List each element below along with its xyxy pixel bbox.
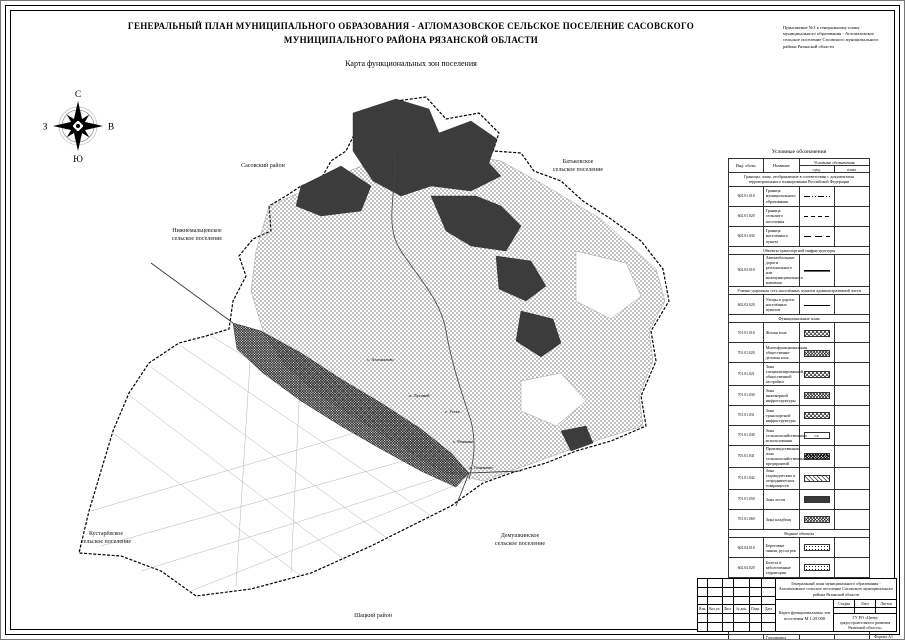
legend-swatch-cell xyxy=(799,445,834,467)
legend-code: 602.01.030 xyxy=(729,226,764,246)
stage-label: Стадия xyxy=(834,600,855,607)
revision-cell xyxy=(708,597,723,605)
legend-name: Жилая зона xyxy=(764,323,799,343)
legend-code: 701.01.020 xyxy=(729,343,764,363)
legend-row: 701.01.042Зона садоводческих и огороднич… xyxy=(729,467,870,489)
settlement-label: п. Луговой xyxy=(409,393,430,398)
revision-col-label: Лист xyxy=(723,605,734,613)
revision-cell xyxy=(762,597,775,605)
legend-swatch-cell xyxy=(799,323,834,343)
settlement-label: с. Устье xyxy=(445,409,460,414)
region-label: Демушкинское сельское поселение xyxy=(455,533,585,549)
legend-name: Улицы и дороги населённых пунктов xyxy=(764,295,799,315)
legend-row: 602.01.020Граница сельского поселения xyxy=(729,206,870,226)
title-block-revision-grid: Изм.Кол.уч.Лист№ док.Подп.Дата xyxy=(698,579,776,631)
legend-code: 701.01.050 xyxy=(729,489,764,509)
legend-name: Болота и заболоченные территории xyxy=(764,558,799,578)
legend-plan-cell xyxy=(834,509,869,529)
revision-cell xyxy=(734,597,751,605)
legend-col-planned: план. xyxy=(834,166,869,173)
legend-swatch-cell xyxy=(799,295,834,315)
legend-swatch-cell xyxy=(799,254,834,286)
revision-cell xyxy=(708,579,723,587)
revision-cell xyxy=(698,588,708,596)
legend-swatch-cell xyxy=(799,467,834,489)
legend-name: Автомобильные дороги регионального или м… xyxy=(764,254,799,286)
legend-row: 602.04.020Болота и заболоченные территор… xyxy=(729,558,870,578)
revision-col-label: Дата xyxy=(762,605,775,613)
page-title-line2: МУНИЦИПАЛЬНОГО РАЙОНА РЯЗАНСКОЙ ОБЛАСТИ xyxy=(96,33,726,47)
legend-section-header: Объекты транспортной инфраструктуры xyxy=(729,246,870,254)
legend-plan-cell xyxy=(834,405,869,425)
revision-col-label: Кол.уч. xyxy=(708,605,723,613)
dashdotdot-swatch-icon xyxy=(804,193,830,200)
legend-title: Условные обозначения xyxy=(728,149,870,155)
crosshatch-swatch-icon xyxy=(804,330,830,337)
legend-row: 701.01.020Многофункциональная общественн… xyxy=(729,343,870,363)
revision-row xyxy=(698,588,775,597)
legend-code: 602.04.010 xyxy=(729,538,764,558)
legend-section-header: Границы, зоны, отображаемые в соответств… xyxy=(729,173,870,187)
legend-code: 701.01.021 xyxy=(729,363,764,385)
legend-swatch-cell xyxy=(799,226,834,246)
crosshatch-swatch-icon xyxy=(804,371,830,378)
legend-section-header: Функциональные зоны xyxy=(729,315,870,323)
revision-cell xyxy=(698,623,708,631)
legend-swatch-cell xyxy=(799,363,834,385)
legend-swatch-cell xyxy=(799,385,834,405)
legend-row: 602.01.010Граница муниципального образов… xyxy=(729,186,870,206)
settlement-label: д. Темешево xyxy=(469,465,493,470)
legend-name: Зона лесов xyxy=(764,489,799,509)
legend-section-header: Улично-дорожная сеть населённых пунктов … xyxy=(729,286,870,294)
revision-row: Изм.Кол.уч.Лист№ док.Подп.Дата xyxy=(698,605,775,614)
revision-col-label: Подп. xyxy=(750,605,762,613)
legend-swatch-cell: сх xyxy=(799,425,834,445)
region-label: Батьковское сельское поселение xyxy=(513,159,643,175)
legend-col-symbols: Условные обозначения xyxy=(799,159,870,166)
legend-name: Производственная зона сельскохозяйственн… xyxy=(764,445,799,467)
legend-name: Зона сельскохозяйственного использования xyxy=(764,425,799,445)
legend-row: 602.03.010Автомобильные дороги региональ… xyxy=(729,254,870,286)
dots-swatch-icon xyxy=(804,564,830,571)
legend-plan-cell xyxy=(834,538,869,558)
legend-name: Газопровод межпоселковый высокого давлен… xyxy=(764,634,799,640)
legend-row: 701.01.030Зона инженерной инфраструктуры xyxy=(729,385,870,405)
revision-col-label: Изм. xyxy=(698,605,708,613)
legend-name: Зона специализированной общественной зас… xyxy=(764,363,799,385)
legend-swatch-cell xyxy=(799,206,834,226)
legend-code: 602.04.020 xyxy=(729,558,764,578)
region-label: Сасовский район xyxy=(198,163,328,171)
hatch-swatch-icon xyxy=(804,475,830,482)
legend-row: 701.01.010Жилая зона xyxy=(729,323,870,343)
thinsolid-swatch-icon xyxy=(804,302,830,309)
page-title-line1: ГЕНЕРАЛЬНЫЙ ПЛАН МУНИЦИПАЛЬНОГО ОБРАЗОВА… xyxy=(96,19,726,33)
legend-panel: Условные обозначения Инд. обозн. Названи… xyxy=(728,149,870,640)
legend-code: 701.01.040 xyxy=(729,425,764,445)
legend-row: 701.01.060Зона кладбищ xyxy=(729,509,870,529)
crosshatch-swatch-icon xyxy=(804,412,830,419)
revision-cell xyxy=(698,597,708,605)
crosshatch2-swatch-icon xyxy=(804,392,830,399)
format-note: Формат А1 xyxy=(821,634,893,639)
revision-cell xyxy=(750,623,762,631)
legend-row: 701.01.050Зона лесов xyxy=(729,489,870,509)
sheet-label: Лист xyxy=(855,600,876,607)
legend-name: Многофункциональная общественно-деловая … xyxy=(764,343,799,363)
appendix-note: Приложение №3 к генеральному плану муниц… xyxy=(783,25,889,50)
revision-cell xyxy=(723,614,734,622)
longdash-swatch-icon xyxy=(804,233,830,240)
region-label: Кустарёвское сельское поселение xyxy=(41,531,171,547)
revision-cell xyxy=(734,588,751,596)
revision-cell xyxy=(750,579,762,587)
revision-cell xyxy=(750,614,762,622)
legend-code: 701.01.042 xyxy=(729,467,764,489)
legend-plan-cell xyxy=(834,295,869,315)
revision-row xyxy=(698,623,775,631)
revision-cell xyxy=(698,579,708,587)
legend-name: Граница населённого пункта xyxy=(764,226,799,246)
revision-row xyxy=(698,579,775,588)
legend-code: 701.01.060 xyxy=(729,509,764,529)
legend-row: 602.01.030Граница населённого пункта xyxy=(729,226,870,246)
legend-name: Зона транспортной инфраструктуры xyxy=(764,405,799,425)
legend-row: 701.01.021Зона специализированной общест… xyxy=(729,363,870,385)
region-label: Шацкий район xyxy=(308,613,438,621)
revision-cell xyxy=(723,623,734,631)
legend-code: 602.01.020 xyxy=(729,206,764,226)
legend-plan-cell xyxy=(834,489,869,509)
legend-name: Зона инженерной инфраструктуры xyxy=(764,385,799,405)
revision-row xyxy=(698,614,775,623)
legend-col-existing: сущ. xyxy=(799,166,834,173)
revision-cell xyxy=(698,614,708,622)
revision-cell xyxy=(750,597,762,605)
settlement-label: с. Агломазово xyxy=(367,357,394,362)
legend-code: 701.01.031 xyxy=(729,405,764,425)
legend-plan-cell xyxy=(834,467,869,489)
legend-code: 602.03.010 xyxy=(729,254,764,286)
revision-cell xyxy=(734,623,751,631)
legend-col-code: Инд. обозн. xyxy=(729,159,764,173)
legend-col-name: Название xyxy=(764,159,799,173)
legend-row: 602.04.010Береговые линии, русла рек xyxy=(729,538,870,558)
legend-swatch-cell xyxy=(799,489,834,509)
legend-code: 602.01.010 xyxy=(729,186,764,206)
legend-table: Инд. обозн. Название Условные обозначени… xyxy=(728,158,870,640)
legend-plan-cell xyxy=(834,254,869,286)
legend-name: Зона кладбищ xyxy=(764,509,799,529)
revision-cell xyxy=(762,614,775,622)
dashdash-swatch-icon xyxy=(804,213,830,220)
revision-cell xyxy=(734,579,751,587)
legend-code: 701.01.010 xyxy=(729,323,764,343)
legend-swatch-cell xyxy=(799,186,834,206)
legend-plan-cell xyxy=(834,323,869,343)
crosshatch2-swatch-icon xyxy=(804,350,830,357)
legend-swatch-cell xyxy=(799,538,834,558)
legend-row: 701.01.031Зона транспортной инфраструкту… xyxy=(729,405,870,425)
legend-header-row: Инд. обозн. Название Условные обозначени… xyxy=(729,159,870,166)
region-label: Нижнемальцевское сельское поселение xyxy=(132,228,262,244)
legend-plan-cell xyxy=(834,425,869,445)
label-swatch-icon: сх xyxy=(804,432,830,439)
page-subtitle: Карта функциональных зон поселения xyxy=(96,59,726,68)
legend-row: 701.01.040Зона сельскохозяйственного исп… xyxy=(729,425,870,445)
revision-cell xyxy=(762,579,775,587)
legend-code: 602.06.010 xyxy=(729,634,764,640)
legend-plan-cell xyxy=(834,343,869,363)
revision-cell xyxy=(762,623,775,631)
legend-row: 701.01.041Производственная зона сельскох… xyxy=(729,445,870,467)
revision-col-label: № док. xyxy=(734,605,751,613)
revision-cell xyxy=(750,588,762,596)
settlement-label: с. Рожково xyxy=(453,439,473,444)
legend-swatch-cell xyxy=(799,509,834,529)
solid-swatch-icon xyxy=(804,267,830,274)
revision-cell xyxy=(708,614,723,622)
revision-cell xyxy=(723,588,734,596)
drawing-sheet: ГЕНЕРАЛЬНЫЙ ПЛАН МУНИЦИПАЛЬНОГО ОБРАЗОВА… xyxy=(0,0,905,640)
legend-code: 602.03.020 xyxy=(729,295,764,315)
page-title: ГЕНЕРАЛЬНЫЙ ПЛАН МУНИЦИПАЛЬНОГО ОБРАЗОВА… xyxy=(96,19,726,48)
legend-plan-cell xyxy=(834,206,869,226)
legend-plan-cell xyxy=(834,186,869,206)
revision-cell xyxy=(708,588,723,596)
legend-code: 701.01.030 xyxy=(729,385,764,405)
legend-plan-cell xyxy=(834,226,869,246)
legend-plan-cell xyxy=(834,363,869,385)
legend-swatch-cell xyxy=(799,343,834,363)
legend-plan-cell xyxy=(834,445,869,467)
revision-cell xyxy=(734,614,751,622)
legend-code: 701.01.041 xyxy=(729,445,764,467)
revision-cell xyxy=(723,597,734,605)
title-block-project-name: Генеральный план муниципального образова… xyxy=(776,579,896,600)
legend-name: Граница сельского поселения xyxy=(764,206,799,226)
legend-swatch-cell xyxy=(799,558,834,578)
revision-row xyxy=(698,597,775,606)
sheets-label: Листов xyxy=(876,600,896,607)
legend-swatch-cell xyxy=(799,405,834,425)
title-block-organization: ГУ РО «Центр градостроительного развития… xyxy=(834,614,896,631)
dark-swatch-icon xyxy=(804,496,830,503)
title-block-doc-name: Карта функциональных зон поселения М 1:2… xyxy=(776,600,834,631)
legend-name: Зона садоводческих и огороднических това… xyxy=(764,467,799,489)
legend-plan-cell xyxy=(834,385,869,405)
revision-cell xyxy=(762,588,775,596)
legend-row: 602.03.020Улицы и дороги населённых пунк… xyxy=(729,295,870,315)
revision-cell xyxy=(723,579,734,587)
crosshatch2-swatch-icon xyxy=(804,516,830,523)
title-block: Изм.Кол.уч.Лист№ док.Подп.Дата Генеральн… xyxy=(697,578,897,632)
crosshatch-dark-swatch-icon xyxy=(804,453,830,460)
legend-plan-cell xyxy=(834,558,869,578)
legend-name: Береговые линии, русла рек xyxy=(764,538,799,558)
revision-cell xyxy=(708,623,723,631)
legend-name: Граница муниципального образования xyxy=(764,186,799,206)
legend-section-header: Водные объекты xyxy=(729,529,870,537)
dots-swatch-icon xyxy=(804,544,830,551)
